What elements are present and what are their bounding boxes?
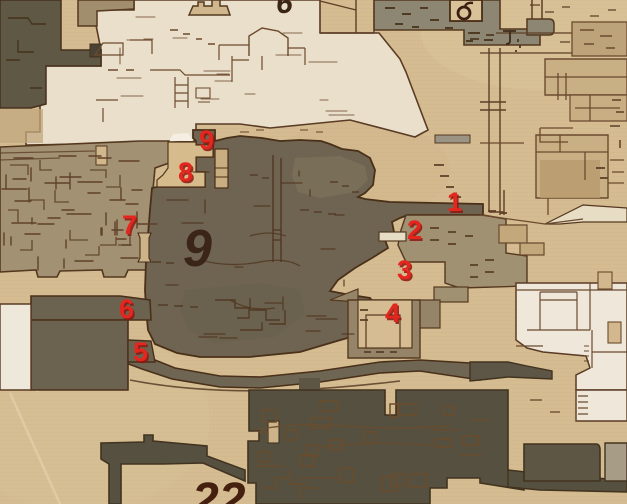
svg-text:6: 6	[119, 294, 134, 324]
svg-text:3: 3	[397, 255, 412, 285]
svg-text:7: 7	[122, 210, 137, 240]
svg-text:22: 22	[191, 474, 246, 504]
svg-text:4: 4	[385, 298, 400, 328]
svg-text:5: 5	[133, 337, 148, 367]
svg-text:9: 9	[199, 125, 214, 155]
svg-text:9: 9	[183, 220, 212, 278]
svg-text:6: 6	[276, 0, 293, 20]
svg-text:8: 8	[178, 157, 193, 187]
svg-text:1: 1	[447, 187, 462, 217]
svg-text:2: 2	[407, 215, 422, 245]
